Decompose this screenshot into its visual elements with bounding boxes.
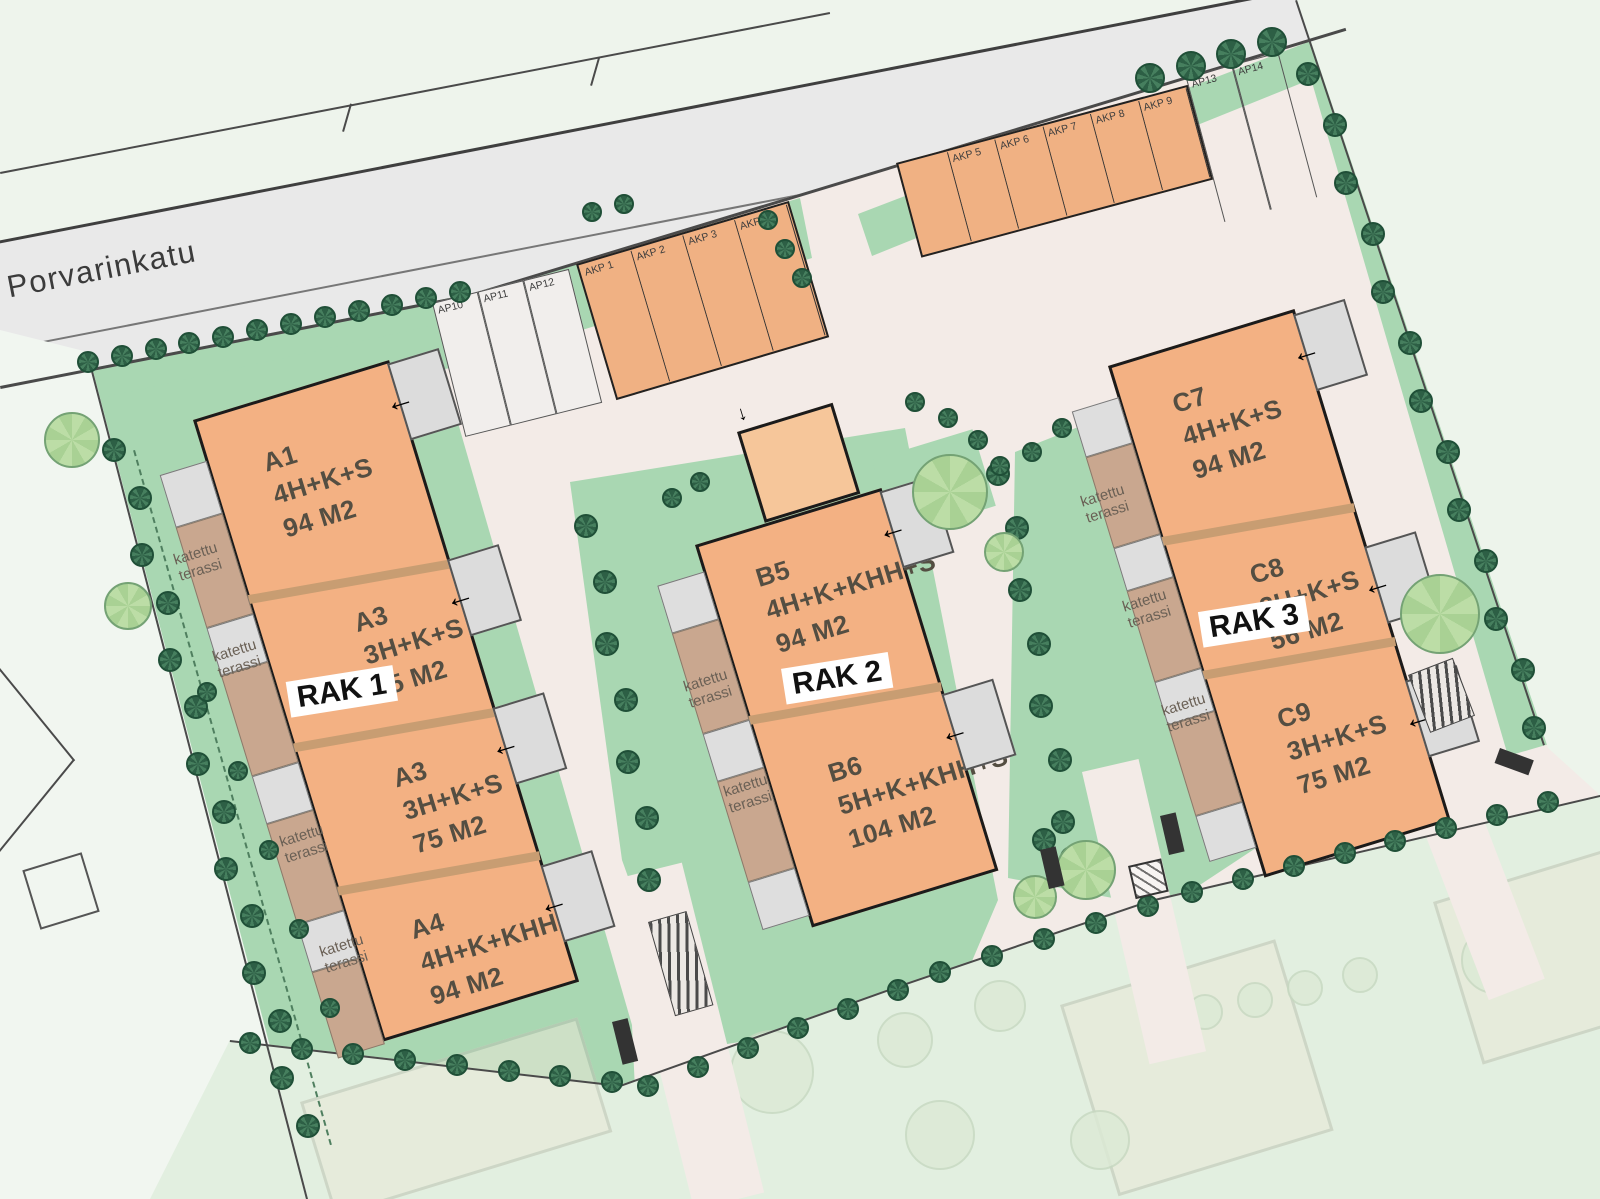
tree-icon (446, 1054, 468, 1076)
tree-icon (1022, 442, 1042, 462)
tree-icon (1486, 804, 1508, 826)
tree-icon (239, 1032, 261, 1054)
tree-icon (1027, 632, 1051, 656)
tree-icon (1447, 498, 1471, 522)
tree-icon (291, 1038, 313, 1060)
tree-icon (77, 351, 99, 373)
tree-icon (595, 632, 619, 656)
tree-icon (601, 1071, 623, 1093)
tree-icon (1283, 855, 1305, 877)
building-rak1-label: RAK 1 (286, 665, 398, 717)
tree-icon (348, 300, 370, 322)
tree-icon (212, 800, 236, 824)
deciduous-tree-icon (912, 454, 988, 530)
tree-icon (690, 472, 710, 492)
tree-icon (1323, 113, 1347, 137)
tree-icon (212, 326, 234, 348)
tree-icon (1361, 222, 1385, 246)
tree-icon (1537, 791, 1559, 813)
unit-c7-label: C7 4H+K+S 94 M2 (1168, 358, 1296, 486)
tree-icon (1398, 331, 1422, 355)
faded-tree-icon (1342, 957, 1378, 993)
tree-icon (320, 998, 340, 1018)
tree-icon (498, 1060, 520, 1082)
tree-icon (111, 345, 133, 367)
unit-c9-label: C9 3H+K+S 75 M2 (1273, 674, 1401, 802)
tree-icon (614, 688, 638, 712)
tree-icon (1371, 280, 1395, 304)
tree-icon (775, 239, 795, 259)
tree-icon (981, 945, 1003, 967)
tree-icon (1135, 63, 1165, 93)
tree-icon (156, 591, 180, 615)
deciduous-tree-icon (1400, 574, 1480, 654)
tree-icon (145, 338, 167, 360)
unit-c8-label: C8 2H+K+S 56 M2 (1246, 529, 1374, 657)
tree-icon (968, 430, 988, 450)
tree-icon (259, 840, 279, 860)
tree-icon (737, 1037, 759, 1059)
faded-tree-icon (877, 1012, 933, 1068)
boundary-line (590, 57, 600, 86)
tree-icon (158, 648, 182, 672)
tree-icon (1181, 881, 1203, 903)
tree-icon (1085, 912, 1107, 934)
unit-a1-label: A1 4H+K+S 94 M2 (259, 417, 387, 545)
tree-icon (905, 392, 925, 412)
tree-icon (758, 210, 778, 230)
faded-tree-icon (1287, 970, 1323, 1006)
tree-icon (662, 488, 682, 508)
tree-icon (929, 961, 951, 983)
tree-icon (1033, 928, 1055, 950)
tree-icon (130, 543, 154, 567)
tree-icon (1051, 810, 1075, 834)
tree-icon (1137, 895, 1159, 917)
tree-icon (687, 1056, 709, 1078)
tree-icon (1409, 389, 1433, 413)
tree-icon (990, 456, 1010, 476)
tree-icon (449, 281, 471, 303)
tree-icon (1334, 171, 1358, 195)
tree-icon (582, 202, 602, 222)
tree-icon (593, 570, 617, 594)
tree-icon (394, 1049, 416, 1071)
tree-icon (228, 761, 248, 781)
site-plan: Porvarinkatu A1 4H+K+S 94 M2 A3 3H+K+S 7… (0, 0, 1600, 1199)
tree-icon (1052, 418, 1072, 438)
tree-icon (887, 979, 909, 1001)
tree-icon (296, 1114, 320, 1138)
tree-icon (1257, 27, 1287, 57)
tree-icon (637, 1075, 659, 1097)
tree-icon (1029, 694, 1053, 718)
tree-icon (128, 486, 152, 510)
tree-icon (1474, 549, 1498, 573)
tree-icon (1511, 658, 1535, 682)
faded-tree-icon (1237, 982, 1273, 1018)
entry-arrow-icon: ← (1286, 331, 1325, 372)
tree-icon (1232, 868, 1254, 890)
tree-icon (1436, 440, 1460, 464)
tree-icon (214, 857, 238, 881)
tree-icon (614, 194, 634, 214)
tree-icon (268, 1009, 292, 1033)
deciduous-tree-icon (104, 582, 152, 630)
entry-arrow-icon: ← (380, 380, 419, 421)
tree-icon (1484, 607, 1508, 631)
deciduous-tree-icon (1056, 840, 1116, 900)
deciduous-tree-icon (44, 412, 100, 468)
tree-icon (1435, 817, 1457, 839)
deciduous-tree-icon (984, 532, 1024, 572)
tree-icon (1384, 830, 1406, 852)
tree-icon (1334, 842, 1356, 864)
faded-tree-icon (974, 980, 1026, 1032)
faded-tree-icon (1070, 1110, 1130, 1170)
tree-icon (574, 514, 598, 538)
tree-icon (270, 1066, 294, 1090)
tree-icon (938, 408, 958, 428)
tree-icon (381, 294, 403, 316)
tree-icon (1176, 51, 1206, 81)
tree-icon (197, 682, 217, 702)
tree-icon (1522, 716, 1546, 740)
tree-icon (1008, 578, 1032, 602)
tree-icon (635, 806, 659, 830)
tree-icon (792, 268, 812, 288)
faded-tree-icon (905, 1100, 975, 1170)
tree-icon (280, 313, 302, 335)
tree-icon (1296, 62, 1320, 86)
